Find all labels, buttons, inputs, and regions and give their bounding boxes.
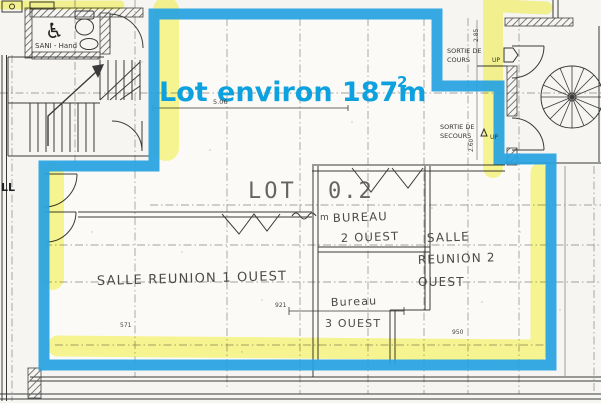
room-label-bureau2-line1: BUREAU: [333, 209, 389, 225]
dimension-506: 5.06: [213, 98, 227, 106]
highlight-top-right: [503, 6, 546, 8]
exit-secours-line2: SECOURS: [440, 132, 471, 140]
hatched-wall-stair-top: [505, 18, 573, 26]
floor-plan-canvas: Lot environ 187m 2 LOT 0.2 SALLE REUNION…: [0, 0, 601, 403]
lot-number-label: LOT: [248, 179, 297, 204]
dimension-285: 2.85: [473, 28, 480, 42]
exit-secours-up: UP: [490, 134, 498, 141]
room-label-bureau3-line2: 3 OUEST: [325, 317, 381, 330]
dimension-921: 921: [275, 302, 287, 309]
dimension-260: 2.60: [468, 138, 475, 152]
room-label-salle2-line1: SALLE: [427, 230, 470, 245]
room-label-bureau3-line1: Bureau: [331, 294, 378, 309]
dimension-950: 950: [452, 329, 464, 336]
hall-label: LL: [1, 181, 15, 194]
exit-cours-line2: COURS: [447, 56, 470, 64]
unit-label: m: [320, 213, 330, 223]
sanitary-label: SANI - Hand: [35, 42, 77, 50]
hatched-wall-bottom-left: [28, 368, 41, 398]
exit-cours-line1: SORTIE DE: [447, 47, 481, 55]
wheelchair-icon: ♿: [45, 19, 64, 43]
exit-secours-line1: SORTIE DE: [440, 123, 474, 131]
lot-number-value: 0.2: [328, 179, 374, 204]
hatched-wall-wc-bottom: [32, 52, 100, 59]
room-label-bureau2-line2: 2 OUEST: [341, 229, 400, 245]
hatched-wall-stair-left: [507, 66, 517, 116]
hatched-wall-wc-left: [25, 8, 32, 58]
lot-annotation-text: Lot environ 187m: [159, 77, 426, 108]
exit-cours-up: UP: [492, 57, 500, 64]
hatched-wall-wc-right: [100, 13, 110, 54]
dimension-571: 571: [120, 322, 132, 329]
floor-plan-scan: Lot environ 187m 2 LOT 0.2 SALLE REUNION…: [0, 0, 601, 403]
room-label-salle2-line3: OUEST: [418, 275, 465, 289]
room-label-salle2-line2: REUNION 2: [418, 250, 496, 267]
lot-annotation-superscript: 2: [397, 73, 407, 91]
highlight-bottom: [58, 346, 538, 350]
